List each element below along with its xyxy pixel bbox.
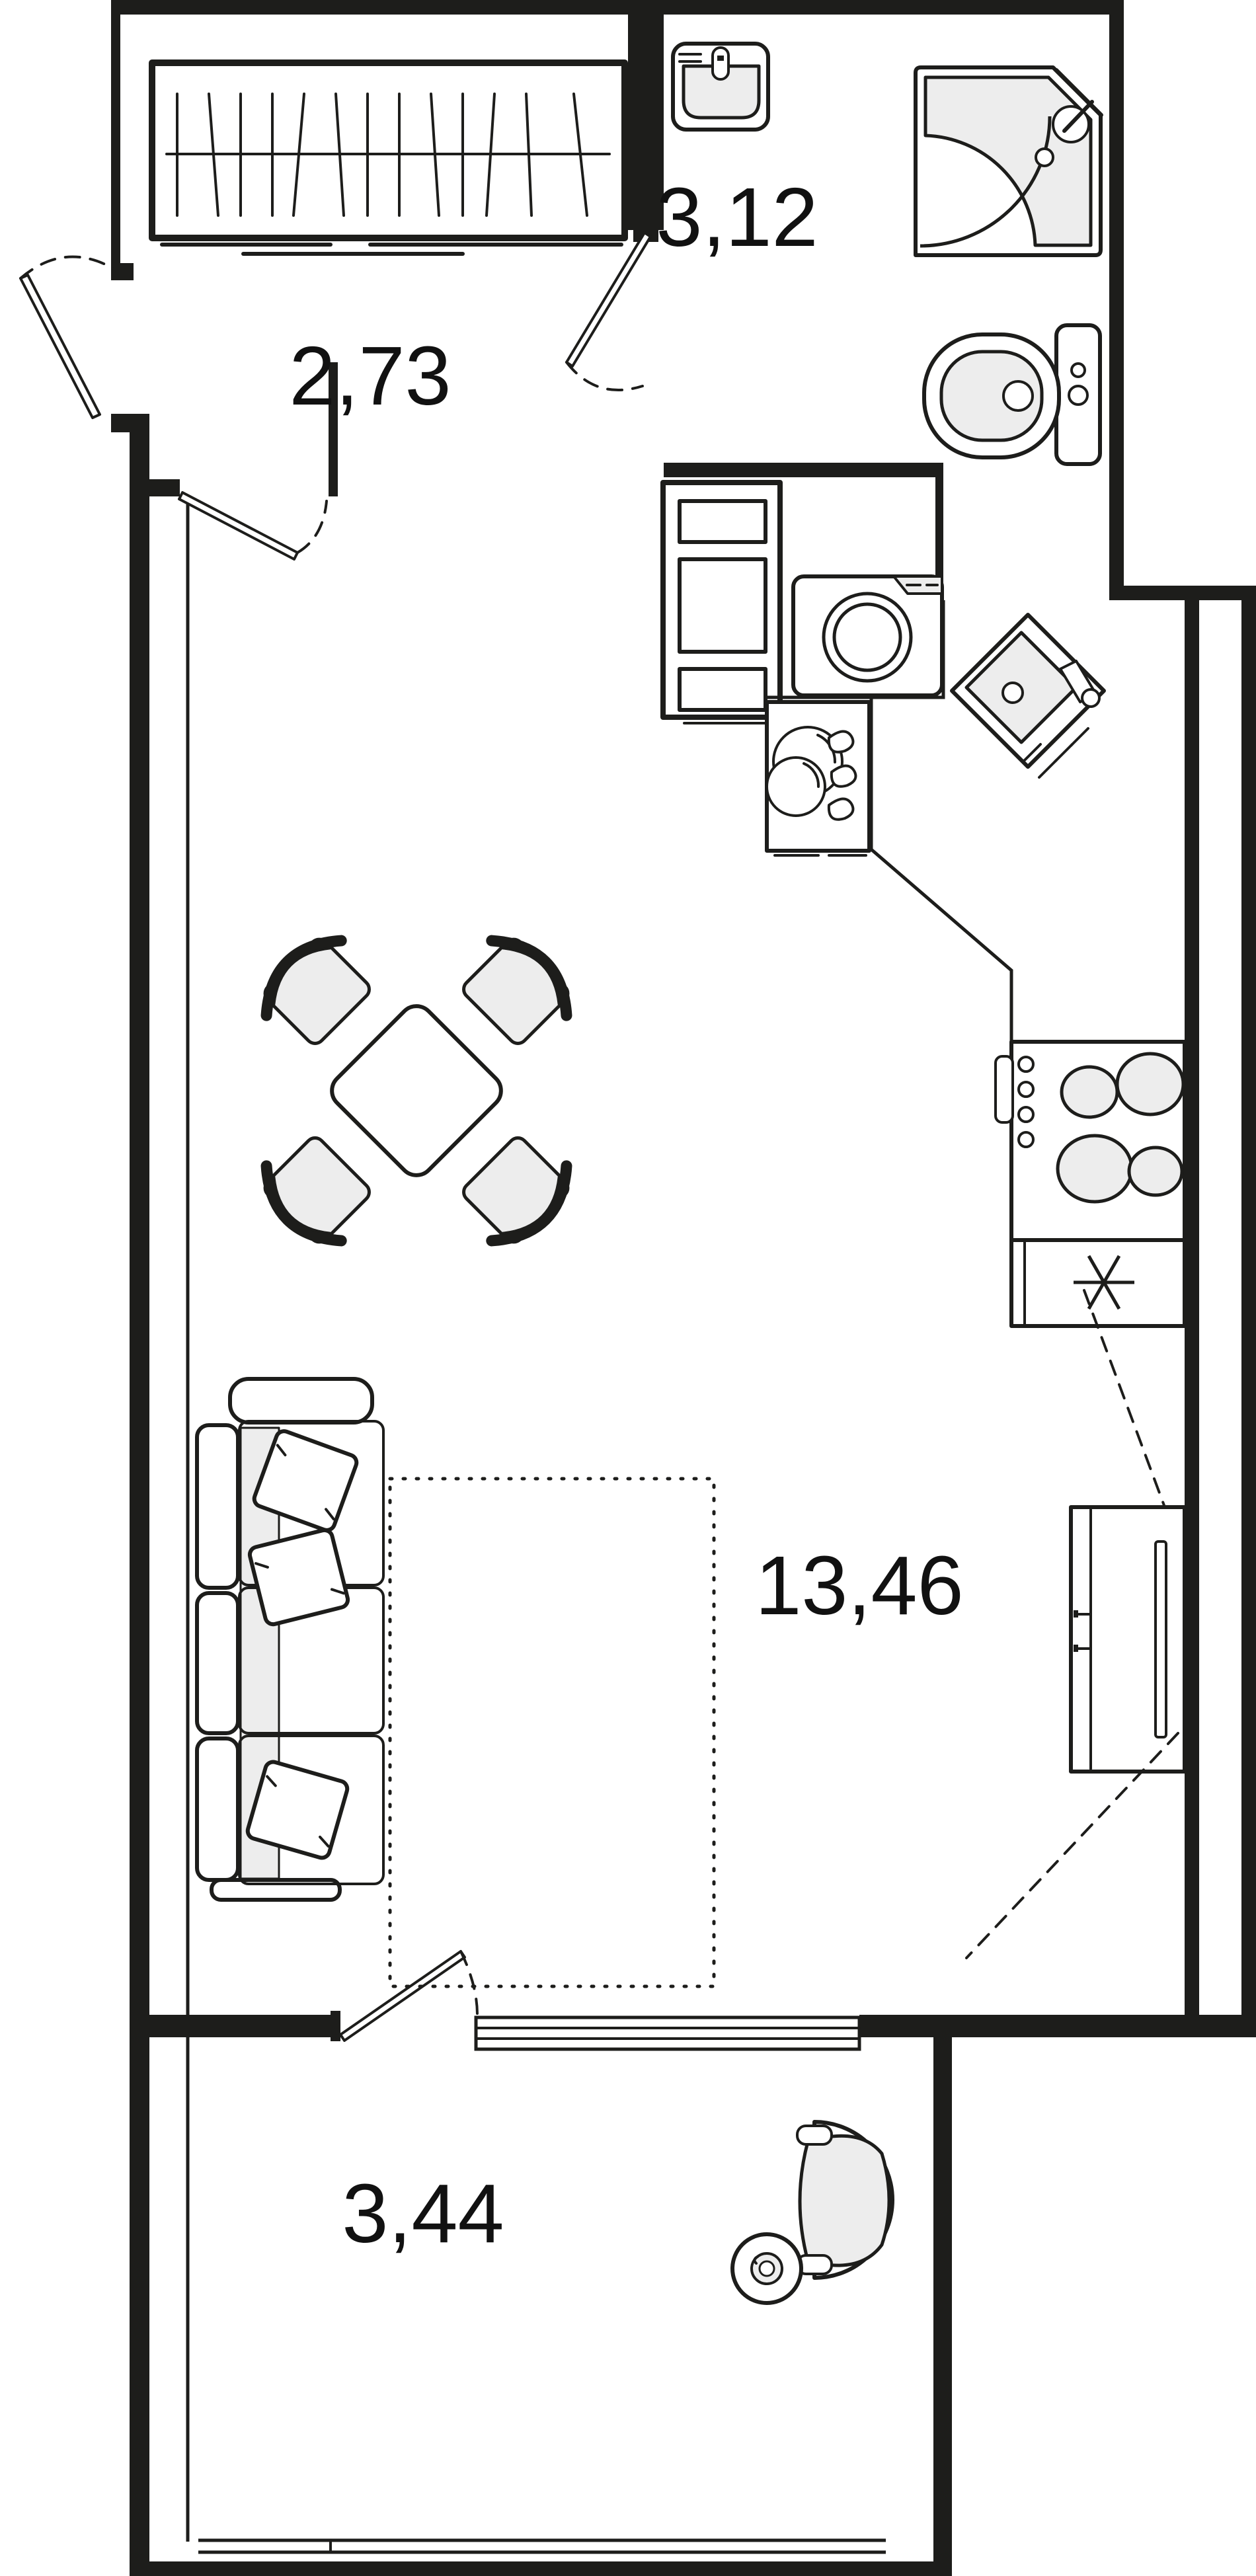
entrance-door-arc	[20, 256, 118, 278]
bathroom-door-arc	[567, 362, 643, 390]
tv-screen	[1156, 1542, 1166, 1737]
washer-door-inner	[834, 604, 900, 670]
tv-unit-handle-dot	[1074, 1645, 1078, 1652]
tv-wardrobe-unit	[1071, 1507, 1185, 1772]
drainboard-groove	[1055, 744, 1072, 761]
hallway-area-label: 2,73	[289, 329, 451, 422]
cooktop-knob	[1019, 1132, 1033, 1147]
chair-seat	[460, 935, 572, 1047]
balcony-area-label: 3,44	[342, 2167, 504, 2260]
bottom-right-closing-wall	[944, 2015, 1249, 2037]
right-wall-main	[1185, 586, 1199, 2037]
hall-partition-stub-left	[149, 479, 180, 496]
armchair-seat	[800, 2136, 889, 2265]
right-step-wall	[1109, 586, 1249, 600]
balcony-wall-pier	[859, 2015, 944, 2037]
bottom-wall	[139, 2561, 952, 2576]
balcony-door-jamb	[331, 2011, 340, 2041]
dining-table	[325, 999, 508, 1182]
left-wall-main	[130, 414, 149, 2576]
kitchen	[663, 483, 1185, 1553]
right-wall-bathroom	[1109, 0, 1124, 600]
cooktop-knob	[1019, 1082, 1033, 1097]
balcony-window	[476, 2017, 859, 2049]
chair-seat	[261, 935, 373, 1047]
kitchen-sink	[952, 615, 1104, 777]
wardrobe-body	[152, 63, 625, 238]
right-facade-line	[1241, 586, 1256, 2037]
drainboard-groove	[1039, 760, 1056, 777]
chair	[250, 924, 381, 1056]
burner	[1129, 1148, 1182, 1195]
tv-unit-body	[1071, 1507, 1185, 1772]
water-drop	[832, 765, 856, 786]
toilet-drain	[1003, 381, 1033, 410]
chair-seat	[261, 1134, 373, 1246]
balcony-right-wall	[933, 2015, 952, 2561]
bath-sink-faucet-tip	[717, 56, 724, 61]
cabinet-shelf	[680, 669, 765, 710]
burner	[1117, 1054, 1183, 1114]
armchair	[797, 2122, 892, 2278]
fridge	[1011, 1240, 1185, 1326]
water-drop	[829, 799, 853, 819]
chair	[451, 1126, 583, 1257]
doors	[20, 233, 650, 2041]
entrance-jamb-top	[111, 263, 134, 280]
sofa-armrest-top	[230, 1379, 372, 1423]
cooktop-knob	[1019, 1107, 1033, 1122]
chair-seat	[460, 1134, 572, 1246]
balcony-glazing	[198, 2540, 886, 2552]
cooktop-knob	[1019, 1057, 1033, 1072]
living-area	[197, 1379, 1185, 1986]
bathroom-door-leaf	[567, 233, 650, 366]
cabinet-shelf	[680, 501, 765, 542]
chair	[250, 1126, 381, 1257]
drainboard-groove	[1071, 728, 1088, 746]
shower-drain	[1036, 149, 1053, 166]
bathroom-area-label: 3,12	[656, 171, 818, 264]
sofa-backrest	[197, 1593, 238, 1733]
floor-plan-page: 2,73 3,12 13,46 3,44	[0, 0, 1256, 2576]
tv-unit-handle-dot	[1074, 1610, 1078, 1618]
dishwasher-plate	[767, 758, 825, 816]
room-door-arc	[297, 501, 327, 553]
tall-cabinet	[663, 483, 780, 723]
armchair-arm	[797, 2126, 832, 2144]
bathroom-bottom-wall-left	[664, 463, 943, 477]
left-wall-hall	[111, 0, 120, 264]
room-labels: 2,73 3,12 13,46 3,44	[289, 171, 963, 2260]
dining-set	[250, 924, 582, 1257]
dishwasher	[767, 702, 869, 855]
kitchen-sink-faucet-tip	[1082, 689, 1099, 707]
washing-machine	[793, 576, 942, 695]
coffee-table	[732, 2234, 801, 2303]
toilet-button	[1072, 364, 1085, 377]
chair	[451, 924, 583, 1056]
living-kitchen-area-label: 13,46	[755, 1539, 963, 1632]
bath-sink	[673, 44, 768, 130]
balcony-door-leaf	[340, 1951, 465, 2041]
sofa	[197, 1379, 383, 1900]
cabinet-shelf	[680, 559, 765, 652]
cooktop	[996, 1042, 1185, 1240]
sofa-backrest	[197, 1425, 238, 1588]
burner	[1062, 1067, 1117, 1117]
balcony-wall-left	[149, 2015, 331, 2037]
counter-edge	[871, 699, 1011, 1042]
sofa-backrest	[197, 1738, 238, 1880]
wardrobe	[152, 63, 625, 254]
toilet	[924, 325, 1100, 464]
top-wall	[111, 0, 1124, 15]
cooktop-handle	[996, 1056, 1013, 1122]
cup-inner	[760, 2261, 774, 2276]
room-door-leaf	[179, 492, 297, 559]
floor-plan: 2,73 3,12 13,46 3,44	[0, 0, 1256, 2576]
water-drop	[829, 731, 853, 752]
shower	[916, 67, 1101, 255]
kitchen-sink-drain	[1003, 683, 1023, 703]
bath-sink-faucet	[713, 48, 728, 79]
bed-outline	[390, 1479, 714, 1986]
toilet-button	[1069, 386, 1087, 405]
burner	[1058, 1136, 1132, 1202]
balcony	[198, 2017, 892, 2552]
window-frame	[476, 2017, 859, 2049]
entrance-door-leaf	[20, 275, 100, 418]
